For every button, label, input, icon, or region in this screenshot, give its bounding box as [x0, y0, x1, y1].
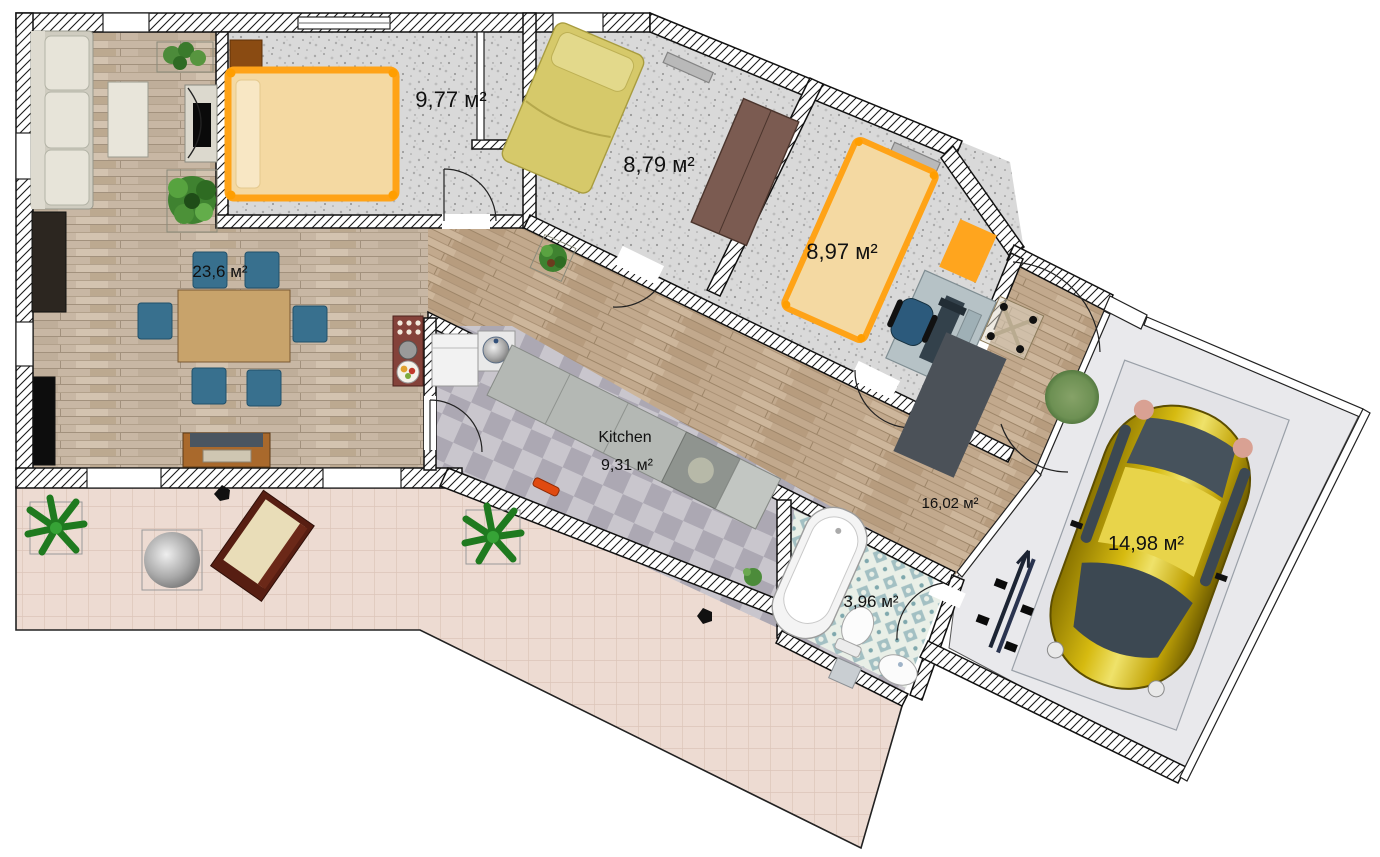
wall-left: [16, 13, 33, 470]
fridge[interactable]: [432, 334, 478, 386]
window-left-2[interactable]: [16, 322, 33, 366]
window-left-1[interactable]: [16, 133, 33, 179]
label-kitchen-area: 9,31 м²: [601, 457, 654, 474]
label-bathroom: 3,96 м²: [843, 592, 898, 611]
coffee-table[interactable]: [108, 82, 148, 157]
label-garage: 14,98 м²: [1108, 533, 1184, 555]
wall-closet-thin: [477, 32, 484, 140]
sideboard[interactable]: [183, 433, 270, 467]
dining-table[interactable]: [178, 290, 290, 362]
window-bottom-1[interactable]: [87, 468, 161, 488]
rug-round-green[interactable]: [1045, 370, 1099, 424]
stove-unit[interactable]: [393, 316, 423, 386]
floor-plan-canvas: 23,6 м² 9,77 м² 8,79 м² 8,97 м² Kitchen …: [0, 0, 1380, 857]
label-hallway: 16,02 м²: [921, 495, 978, 512]
label-living-room: 23,6 м²: [192, 262, 247, 281]
label-bedroom-2: 8,79 м²: [623, 152, 694, 177]
door-terrace[interactable]: [323, 468, 401, 488]
bed-double[interactable]: [227, 69, 398, 200]
shelf-unit-lower[interactable]: [33, 377, 55, 465]
label-kitchen-name: Kitchen: [598, 429, 651, 446]
label-bedroom-1: 9,77 м²: [415, 87, 486, 112]
sofa[interactable]: [31, 31, 93, 209]
tv-stand[interactable]: [185, 85, 217, 162]
label-bedroom-3: 8,97 м²: [806, 239, 877, 264]
window-top-1[interactable]: [103, 13, 149, 32]
shelf-unit-upper[interactable]: [32, 212, 66, 312]
dresser-bedroom1[interactable]: [230, 40, 262, 68]
doorway-bedroom1[interactable]: [442, 214, 490, 229]
